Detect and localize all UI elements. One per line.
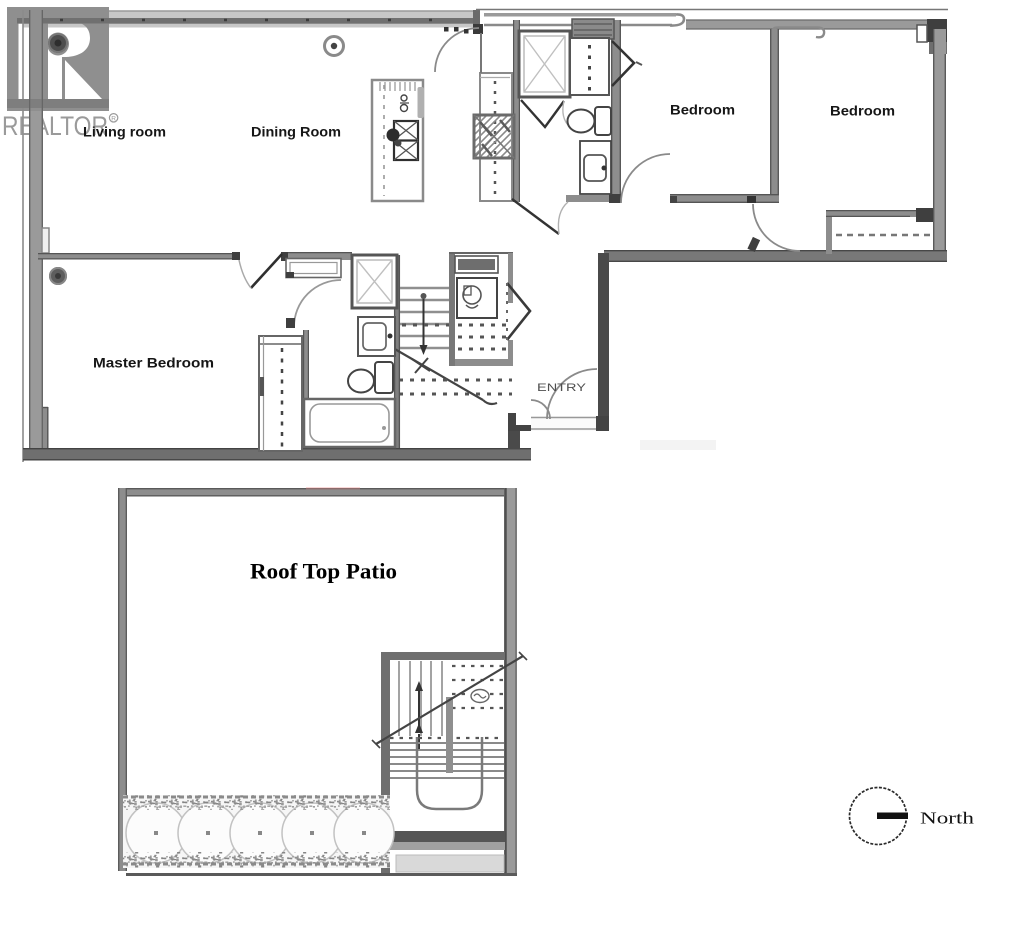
svg-text:ENTRY: ENTRY [537,382,587,394]
svg-text:North: North [920,809,975,828]
svg-text:R: R [111,115,116,122]
svg-text:Dining Room: Dining Room [251,124,341,140]
svg-text:Bedroom: Bedroom [830,103,895,119]
svg-text:Roof Top Patio: Roof Top Patio [250,559,397,584]
svg-text:Master Bedroom: Master Bedroom [93,355,214,371]
svg-text:Bedroom: Bedroom [670,102,735,118]
svg-text:REALTOR: REALTOR [2,111,108,141]
